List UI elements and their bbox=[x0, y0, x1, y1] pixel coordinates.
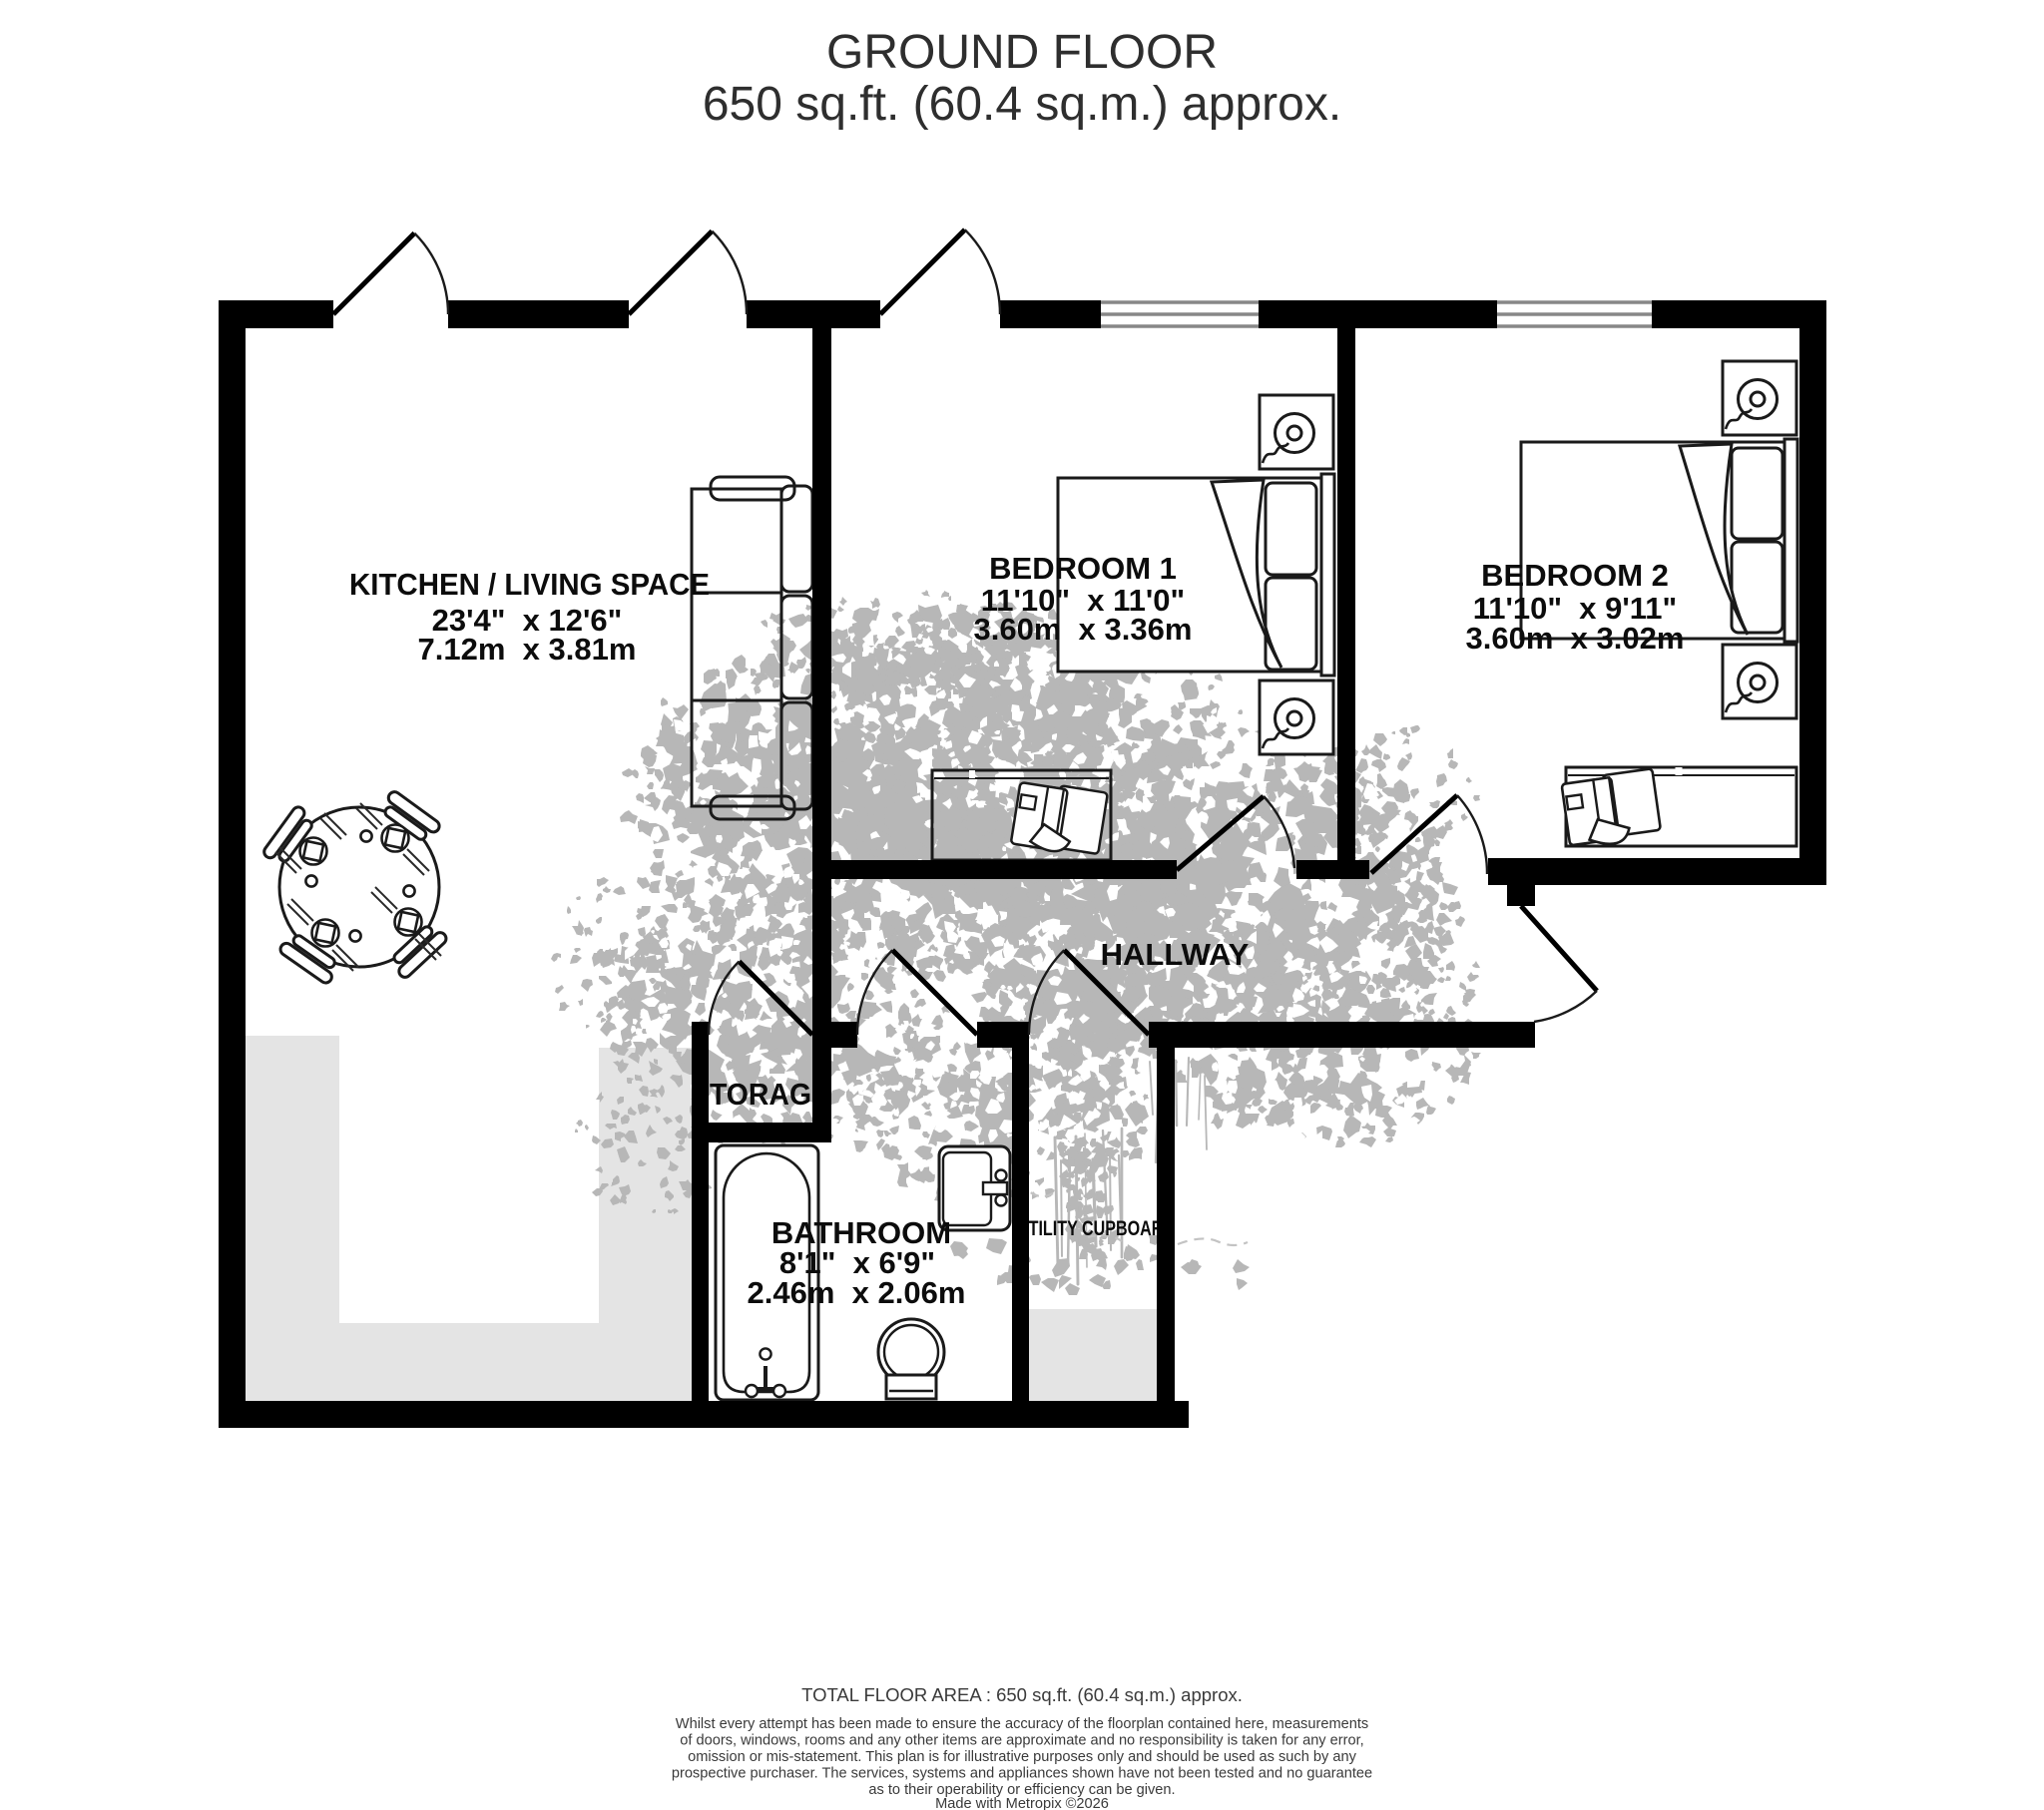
svg-text:3.60m x 3.02m: 3.60m x 3.02m bbox=[1466, 621, 1685, 656]
svg-text:Whilst every attempt has been: Whilst every attempt has been made to en… bbox=[676, 1716, 1368, 1732]
svg-text:TOTAL FLOOR AREA : 650 sq.ft.: TOTAL FLOOR AREA : 650 sq.ft. (60.4 sq.m… bbox=[801, 1684, 1243, 1705]
svg-text:GROUND FLOOR: GROUND FLOOR bbox=[826, 26, 1218, 79]
svg-text:omission or mis-statement. Thi: omission or mis-statement. This plan is … bbox=[688, 1749, 1356, 1765]
svg-text:3.60m x 3.36m: 3.60m x 3.36m bbox=[974, 612, 1193, 647]
svg-text:BEDROOM 2: BEDROOM 2 bbox=[1481, 558, 1669, 593]
svg-text:KITCHEN / LIVING SPACE: KITCHEN / LIVING SPACE bbox=[349, 567, 710, 602]
svg-text:STORAGE: STORAGE bbox=[691, 1077, 830, 1112]
svg-text:prospective purchaser. The ser: prospective purchaser. The services, sys… bbox=[672, 1766, 1372, 1782]
svg-text:HALLWAY: HALLWAY bbox=[1101, 937, 1250, 972]
svg-text:650 sq.ft. (60.4 sq.m.) approx: 650 sq.ft. (60.4 sq.m.) approx. bbox=[703, 78, 1341, 131]
svg-text:7.12m x 3.81m: 7.12m x 3.81m bbox=[418, 632, 637, 667]
svg-text:BEDROOM 1: BEDROOM 1 bbox=[989, 551, 1177, 586]
svg-text:UTILITY CUPBOARD: UTILITY CUPBOARD bbox=[1017, 1217, 1175, 1240]
svg-text:Made with Metropix ©2026: Made with Metropix ©2026 bbox=[935, 1796, 1109, 1810]
svg-text:2.46m x 2.06m: 2.46m x 2.06m bbox=[748, 1275, 966, 1310]
svg-text:of doors, windows, rooms and a: of doors, windows, rooms and any other i… bbox=[680, 1733, 1363, 1749]
